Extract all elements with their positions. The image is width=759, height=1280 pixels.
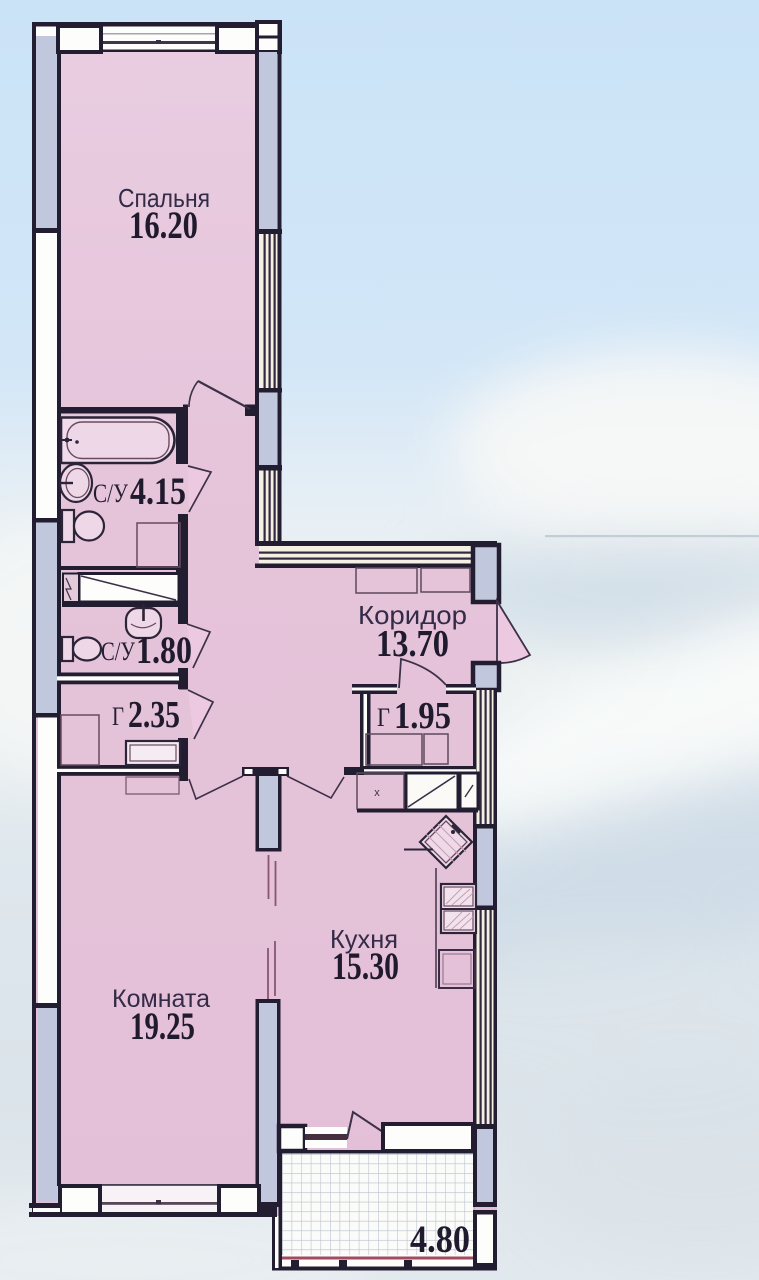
svg-text:1.95: 1.95 [394,695,451,737]
svg-text:4.80: 4.80 [410,1218,470,1261]
svg-text:19.25: 19.25 [130,1005,195,1048]
svg-text:2.35: 2.35 [128,694,180,736]
svg-text:Г: Г [112,702,124,731]
svg-text:1.80: 1.80 [136,629,192,672]
svg-text:4.15: 4.15 [130,470,186,513]
svg-text:15.30: 15.30 [332,945,399,988]
svg-text:Г: Г [377,703,390,732]
svg-text:13.70: 13.70 [376,623,449,665]
svg-text:x: x [374,787,380,799]
svg-text:16.20: 16.20 [129,204,198,247]
svg-text:С/У: С/У [93,479,128,508]
svg-text:С/У: С/У [101,637,135,666]
